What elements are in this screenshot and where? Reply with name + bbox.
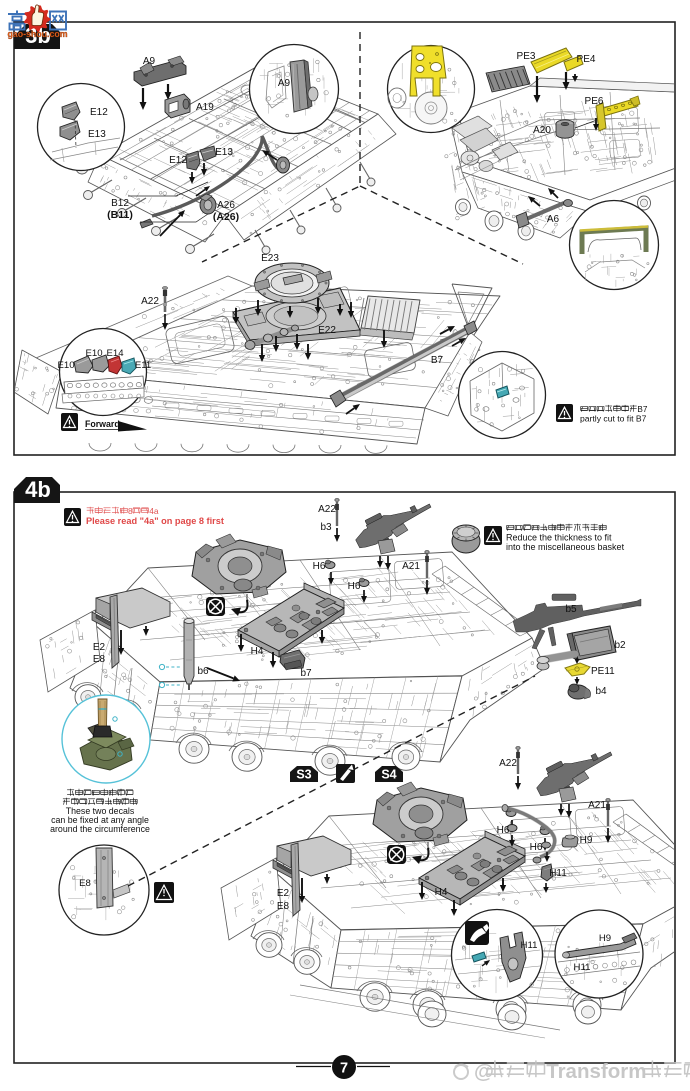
- svg-text:H11: H11: [549, 868, 567, 879]
- svg-text:H6: H6: [530, 842, 543, 853]
- svg-text:Transform: Transform: [546, 1060, 646, 1083]
- svg-text:E13: E13: [215, 147, 233, 158]
- svg-text:H6: H6: [313, 561, 326, 572]
- svg-text:S4: S4: [381, 768, 396, 782]
- svg-text:b2: b2: [614, 640, 626, 651]
- svg-text:E12: E12: [90, 107, 108, 118]
- svg-text:A21: A21: [588, 800, 606, 811]
- svg-text:A20: A20: [533, 125, 551, 136]
- svg-text:7: 7: [340, 1061, 348, 1077]
- svg-text:A9: A9: [143, 56, 156, 67]
- svg-text:E13: E13: [88, 129, 106, 140]
- svg-text:b3: b3: [320, 522, 332, 533]
- svg-text:E8: E8: [277, 901, 290, 912]
- svg-text:H9: H9: [580, 835, 593, 846]
- svg-text:(A26): (A26): [213, 211, 239, 223]
- svg-text:b6: b6: [197, 666, 209, 677]
- svg-text:b7: b7: [300, 668, 312, 679]
- svg-text:A6: A6: [547, 214, 560, 225]
- svg-text:H6: H6: [497, 825, 510, 836]
- svg-text:A9: A9: [278, 78, 291, 89]
- svg-text:H9: H9: [599, 933, 611, 944]
- svg-text:around the circumference: around the circumference: [50, 824, 150, 834]
- svg-text:E23: E23: [261, 253, 279, 264]
- svg-text:E2: E2: [277, 888, 290, 899]
- svg-text:b4: b4: [595, 686, 607, 697]
- svg-text:into the miscellaneous basket: into the miscellaneous basket: [506, 542, 625, 552]
- svg-text:A19: A19: [196, 102, 214, 113]
- svg-text:4a: 4a: [149, 506, 159, 516]
- svg-text:E12: E12: [169, 155, 187, 166]
- svg-text:A26: A26: [217, 200, 235, 211]
- svg-text:PE6: PE6: [585, 96, 604, 107]
- svg-text:8: 8: [128, 506, 133, 516]
- svg-text:@: @: [474, 1060, 494, 1083]
- svg-text:Reduce the thickness to fit: Reduce the thickness to fit: [506, 533, 612, 543]
- svg-text:partly cut to fit B7: partly cut to fit B7: [580, 414, 647, 424]
- svg-text:H11: H11: [574, 962, 591, 973]
- svg-text:H6: H6: [348, 581, 361, 592]
- svg-text:E8: E8: [79, 878, 91, 889]
- svg-text:A22: A22: [141, 296, 159, 307]
- svg-text:E10: E10: [85, 348, 102, 359]
- svg-text:E2: E2: [93, 642, 106, 653]
- svg-text:Forward: Forward: [85, 419, 120, 429]
- svg-text:PE4: PE4: [577, 54, 596, 65]
- svg-text:PE3: PE3: [517, 51, 536, 62]
- svg-text:Please read "4a" on page 8 fir: Please read "4a" on page 8 first: [86, 516, 224, 526]
- svg-text:(B11): (B11): [107, 209, 133, 221]
- svg-text:S3: S3: [296, 768, 311, 782]
- svg-text:A22: A22: [499, 758, 517, 769]
- svg-text:E10: E10: [57, 360, 74, 371]
- svg-text:4b: 4b: [25, 477, 51, 502]
- svg-text:b5: b5: [565, 604, 577, 615]
- svg-text:E14: E14: [106, 348, 124, 359]
- svg-text:H4: H4: [435, 887, 448, 898]
- svg-text:gao-shou.com: gao-shou.com: [7, 29, 67, 39]
- svg-text:E22: E22: [318, 325, 336, 336]
- svg-text:A22: A22: [318, 504, 336, 515]
- svg-text:H4: H4: [251, 646, 264, 657]
- svg-text:E8: E8: [93, 654, 106, 665]
- svg-text:B7: B7: [431, 355, 444, 366]
- svg-text:E11: E11: [135, 360, 151, 371]
- svg-text:A21: A21: [402, 561, 420, 572]
- svg-text:B12: B12: [111, 198, 129, 209]
- svg-text:PE11: PE11: [591, 666, 615, 677]
- svg-text:H11: H11: [521, 940, 538, 951]
